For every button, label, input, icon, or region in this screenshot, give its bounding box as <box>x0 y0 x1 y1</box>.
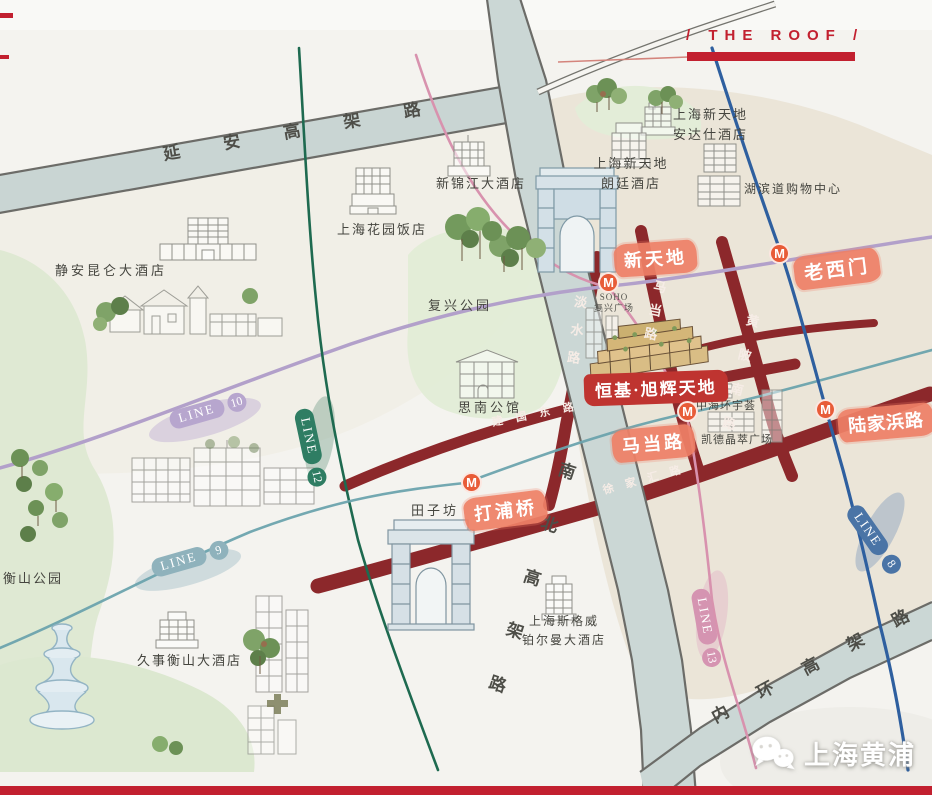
building-andaz <box>641 103 675 135</box>
label-hengshan-park: 衡山公园 <box>3 569 63 589</box>
line-13-number: 13 <box>701 646 723 668</box>
map-poster: / THE ROOF / 延安高架路 南北高架路 内环高架路 徐家汇路 建国东路… <box>0 0 932 795</box>
label-tianzifang: 田子坊 <box>411 501 459 521</box>
roof-title: / THE ROOF / <box>686 27 864 44</box>
metro-m-icon-xintiandi: M <box>598 272 619 293</box>
label-pullman-hotel: 上海斯格威 铂尔曼大酒店 <box>516 612 612 649</box>
red-tick-bottom <box>0 55 9 59</box>
label-soho-fuxing-plaza: SOHO 复兴广场 <box>588 292 640 315</box>
label-langham-hotel: 上海新天地 朗廷酒店 <box>588 154 674 194</box>
metro-m-icon-laoximen: M <box>769 243 790 264</box>
building-garden-hotel <box>350 168 396 214</box>
metro-m-icon-madanglu: M <box>677 401 698 422</box>
metro-m-icon-lujiabanglu: M <box>815 399 836 420</box>
wechat-icon <box>748 731 798 776</box>
red-tick-top <box>0 13 13 18</box>
label-andaz-line1: 上海新天地 <box>673 105 748 125</box>
metro-m-icon-dapuqiao: M <box>461 472 482 493</box>
label-sinan-mansions: 思南公馆 <box>458 398 522 418</box>
footer-red-bar <box>0 786 932 795</box>
project-badge: 恒基·旭辉天地 <box>583 370 728 407</box>
label-andaz-line2: 安达仕酒店 <box>673 125 748 145</box>
building-jiushi <box>156 612 198 648</box>
roof-red-bar <box>687 52 855 61</box>
label-langham-line2: 朗廷酒店 <box>588 174 674 194</box>
label-soho-line2: 复兴广场 <box>588 303 640 314</box>
label-garden-hotel: 上海花园饭店 <box>337 220 427 240</box>
label-soho-line1: SOHO <box>588 292 640 303</box>
label-andaz-hotel: 上海新天地 安达仕酒店 <box>673 105 748 145</box>
label-capitaland-lux: 凯德晶萃广场 <box>701 432 773 449</box>
label-hubindao-mall: 湖滨道购物中心 <box>744 180 842 199</box>
label-jiushi-hengshan-hotel: 久事衡山大酒店 <box>137 651 242 671</box>
label-xinjinjiang-hotel: 新锦江大酒店 <box>436 174 526 194</box>
label-pullman-line2: 铂尔曼大酒店 <box>516 631 612 650</box>
label-fuxing-park: 复兴公园 <box>428 296 492 316</box>
tianzifang-gate-illustration <box>388 520 474 630</box>
label-pullman-line1: 上海斯格威 <box>516 612 612 631</box>
label-langham-line1: 上海新天地 <box>588 154 674 174</box>
station-badge-xintiandi: 新天地 <box>613 239 698 278</box>
watermark-name: 上海黄浦 <box>804 735 916 772</box>
watermark: 上海黄浦 <box>750 733 916 773</box>
label-jingan-kunlun-hotel: 静安昆仑大酒店 <box>55 261 167 281</box>
building-small-block <box>248 706 296 754</box>
